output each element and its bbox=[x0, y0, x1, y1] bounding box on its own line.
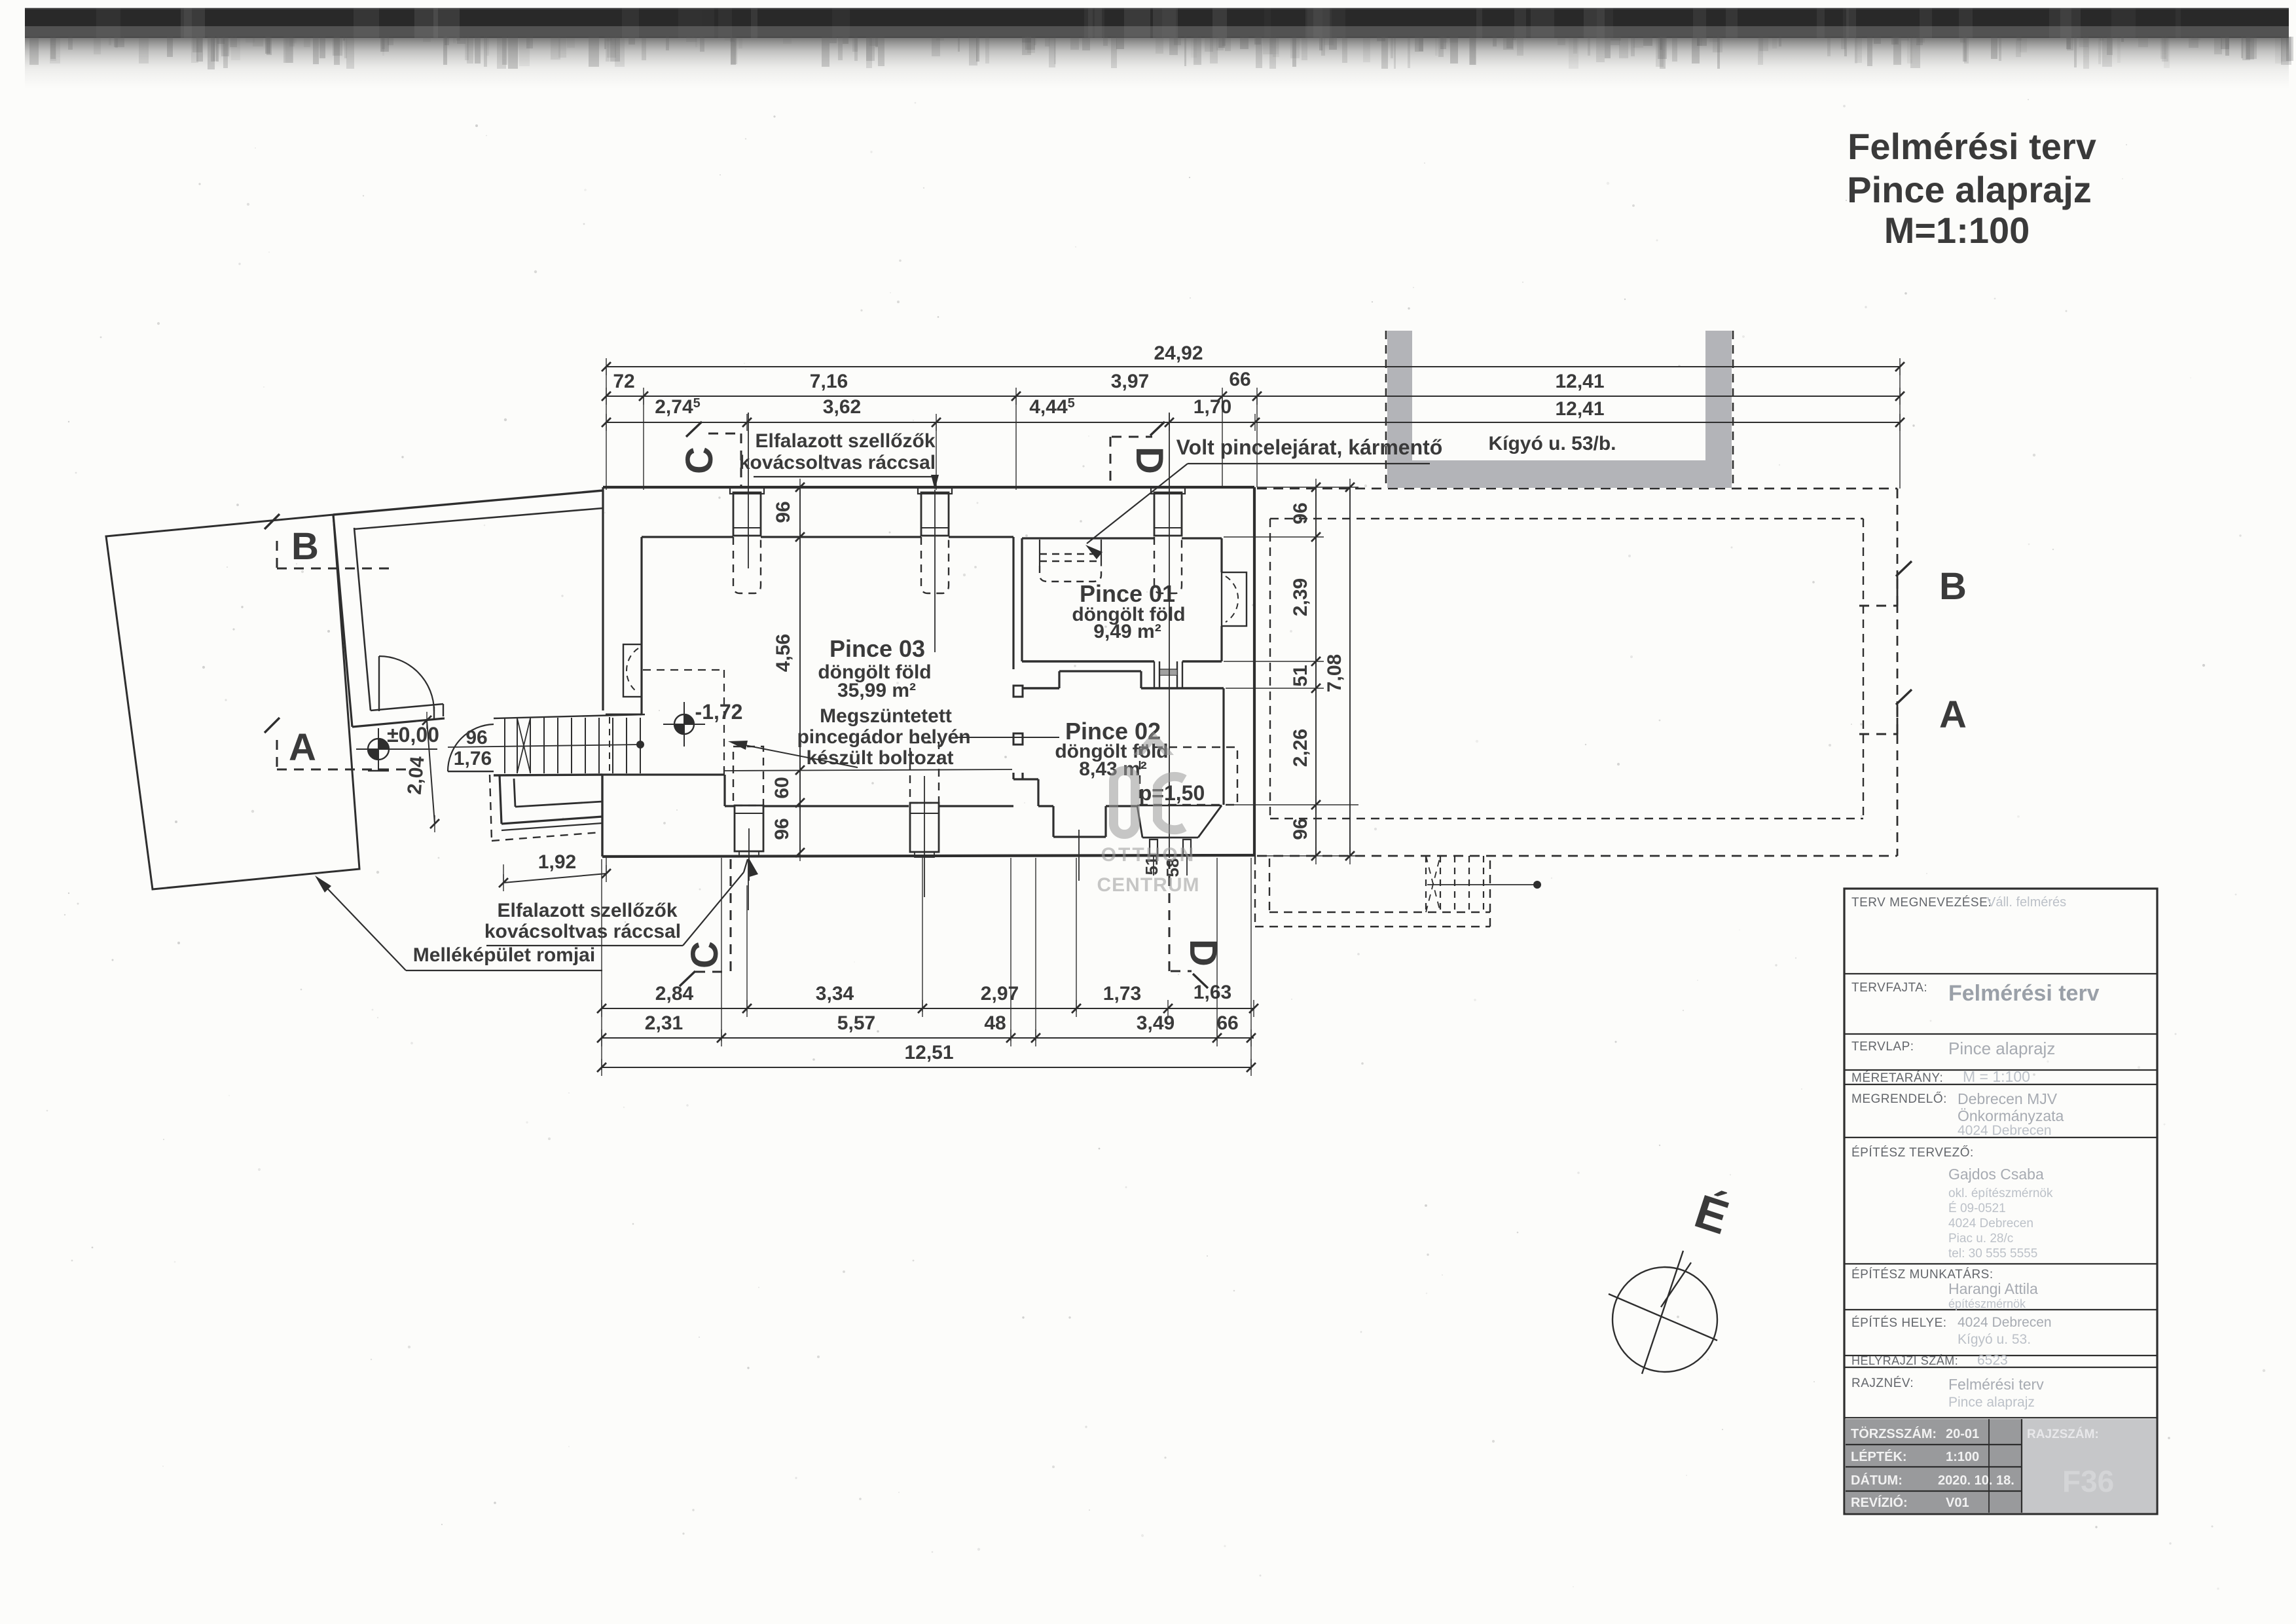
svg-text:Melléképület romjai: Melléképület romjai bbox=[413, 944, 595, 966]
svg-text:É 09-0521: É 09-0521 bbox=[1948, 1202, 2006, 1215]
svg-text:1:100: 1:100 bbox=[1946, 1450, 1979, 1464]
svg-text:Debrecen MJV: Debrecen MJV bbox=[1958, 1090, 2058, 1107]
svg-text:Felmérési terv: Felmérési terv bbox=[1948, 1376, 2044, 1393]
svg-text:C: C bbox=[683, 941, 726, 969]
svg-text:20-01: 20-01 bbox=[1946, 1427, 1979, 1441]
svg-text:7,16: 7,16 bbox=[810, 371, 848, 392]
svg-text:ÉPÍTÉS HELYE:: ÉPÍTÉS HELYE: bbox=[1851, 1316, 1947, 1330]
svg-text:96: 96 bbox=[773, 501, 794, 523]
svg-text:ÉPÍTÉSZ MUNKATÁRS:: ÉPÍTÉSZ MUNKATÁRS: bbox=[1851, 1268, 1994, 1282]
svg-text:3,49: 3,49 bbox=[1137, 1012, 1175, 1034]
svg-text:D: D bbox=[1128, 447, 1171, 474]
svg-text:Pince alaprajz: Pince alaprajz bbox=[1847, 169, 2092, 210]
svg-text:12,41: 12,41 bbox=[1555, 371, 1604, 392]
svg-text:Pince 03: Pince 03 bbox=[829, 635, 925, 662]
svg-text:V01: V01 bbox=[1946, 1496, 1969, 1510]
svg-text:±0,00: ±0,00 bbox=[387, 723, 439, 747]
svg-text:Elfalazott szellőzők: Elfalazott szellőzők bbox=[497, 900, 677, 921]
svg-text:4024 Debrecen: 4024 Debrecen bbox=[1948, 1217, 2033, 1230]
svg-text:24,92: 24,92 bbox=[1154, 342, 1203, 364]
svg-text:RAJZNÉV:: RAJZNÉV: bbox=[1851, 1376, 1914, 1390]
svg-text:4,445: 4,445 bbox=[1029, 396, 1075, 418]
svg-text:66: 66 bbox=[1229, 369, 1250, 390]
svg-text:okl. építészmérnök: okl. építészmérnök bbox=[1948, 1187, 2053, 1200]
svg-text:ÉPÍTÉSZ TERVEZŐ:: ÉPÍTÉSZ TERVEZŐ: bbox=[1851, 1145, 1974, 1160]
svg-text:1,63: 1,63 bbox=[1194, 982, 1231, 1003]
svg-text:1,76: 1,76 bbox=[454, 748, 492, 769]
svg-text:LÉPTÉK:: LÉPTÉK: bbox=[1851, 1449, 1907, 1464]
svg-text:Felmérési terv: Felmérési terv bbox=[1948, 981, 2100, 1006]
svg-text:RAJZSZÁM:: RAJZSZÁM: bbox=[2027, 1427, 2099, 1441]
svg-text:kovácsoltvas ráccsal: kovácsoltvas ráccsal bbox=[484, 921, 681, 942]
svg-text:Váll. felmérés: Váll. felmérés bbox=[1987, 895, 2066, 910]
svg-text:Pince alaprajz: Pince alaprajz bbox=[1948, 1395, 2035, 1410]
svg-text:48: 48 bbox=[984, 1012, 1006, 1034]
svg-text:2,745: 2,745 bbox=[655, 396, 701, 418]
svg-text:Pince 01: Pince 01 bbox=[1080, 580, 1175, 607]
svg-text:2,04: 2,04 bbox=[404, 755, 429, 795]
svg-text:2,39: 2,39 bbox=[1290, 578, 1311, 616]
svg-text:6523: 6523 bbox=[1977, 1353, 2008, 1368]
svg-text:Megszüntetett: Megszüntetett bbox=[820, 705, 952, 727]
svg-text:-1,72: -1,72 bbox=[695, 700, 743, 724]
svg-text:A: A bbox=[1939, 693, 1967, 736]
svg-text:B: B bbox=[1939, 565, 1967, 608]
svg-text:Önkormányzata: Önkormányzata bbox=[1958, 1107, 2064, 1124]
svg-text:4,56: 4,56 bbox=[773, 634, 794, 672]
svg-text:D: D bbox=[1182, 939, 1224, 967]
svg-text:1,73: 1,73 bbox=[1103, 983, 1141, 1005]
svg-text:2020. 10. 18.: 2020. 10. 18. bbox=[1938, 1473, 2014, 1488]
svg-text:A: A bbox=[289, 726, 316, 769]
svg-text:HELYRAJZI SZÁM:: HELYRAJZI SZÁM: bbox=[1851, 1354, 1958, 1367]
svg-text:Volt pincelejárat, kármentő: Volt pincelejárat, kármentő bbox=[1176, 435, 1443, 459]
svg-text:CENTRUM: CENTRUM bbox=[1097, 874, 1200, 896]
svg-text:készült boltozat: készült boltozat bbox=[806, 747, 953, 769]
svg-text:M=1:100: M=1:100 bbox=[1884, 210, 2030, 251]
svg-text:12,51: 12,51 bbox=[904, 1042, 953, 1063]
svg-text:REVÍZIÓ:: REVÍZIÓ: bbox=[1851, 1494, 1908, 1510]
svg-text:1,70: 1,70 bbox=[1194, 396, 1231, 418]
svg-text:3,34: 3,34 bbox=[816, 983, 854, 1005]
svg-text:5,57: 5,57 bbox=[837, 1012, 875, 1034]
svg-text:pincegádor helyén: pincegádor helyén bbox=[797, 726, 970, 748]
svg-text:4024 Debrecen: 4024 Debrecen bbox=[1958, 1315, 2052, 1330]
svg-text:2,97: 2,97 bbox=[981, 983, 1019, 1005]
svg-text:C: C bbox=[678, 447, 721, 474]
svg-text:60: 60 bbox=[771, 777, 793, 798]
svg-text:Piac u. 28/c: Piac u. 28/c bbox=[1948, 1232, 2013, 1246]
svg-text:építészmérnök: építészmérnök bbox=[1948, 1297, 2026, 1310]
svg-text:F36: F36 bbox=[2062, 1464, 2114, 1498]
svg-text:1,92: 1,92 bbox=[538, 851, 576, 873]
svg-text:96: 96 bbox=[771, 818, 793, 840]
svg-text:Harangi Attila: Harangi Attila bbox=[1948, 1280, 2038, 1297]
svg-text:Gajdos Csaba: Gajdos Csaba bbox=[1948, 1166, 2044, 1183]
svg-text:TERVFAJTA:: TERVFAJTA: bbox=[1851, 981, 1927, 995]
svg-text:2,31: 2,31 bbox=[645, 1012, 683, 1034]
svg-text:96: 96 bbox=[1290, 502, 1311, 524]
svg-text:51: 51 bbox=[1290, 665, 1311, 686]
svg-text:7,08: 7,08 bbox=[1324, 654, 1345, 692]
svg-text:9,49 m²: 9,49 m² bbox=[1093, 621, 1161, 642]
svg-text:kovácsoltvas ráccsal: kovácsoltvas ráccsal bbox=[739, 452, 936, 473]
svg-text:TÖRZSSZÁM:: TÖRZSSZÁM: bbox=[1851, 1426, 1937, 1441]
svg-text:Kígyó u. 53.: Kígyó u. 53. bbox=[1958, 1332, 2031, 1347]
svg-text:12,41: 12,41 bbox=[1555, 398, 1604, 420]
svg-text:72: 72 bbox=[613, 371, 634, 392]
svg-text:B: B bbox=[291, 525, 319, 568]
svg-text:4024 Debrecen: 4024 Debrecen bbox=[1958, 1123, 2052, 1138]
svg-text:2,84: 2,84 bbox=[655, 983, 694, 1005]
svg-text:96: 96 bbox=[1290, 818, 1311, 840]
svg-text:OTTHON: OTTHON bbox=[1101, 844, 1196, 866]
svg-text:66: 66 bbox=[1216, 1012, 1238, 1034]
svg-text:3,97: 3,97 bbox=[1111, 371, 1149, 392]
svg-text:2,26: 2,26 bbox=[1290, 729, 1311, 767]
svg-text:MÉRETARÁNY:: MÉRETARÁNY: bbox=[1851, 1071, 1943, 1085]
svg-text:TERVLAP:: TERVLAP: bbox=[1851, 1040, 1914, 1054]
svg-text:MEGRENDELŐ:: MEGRENDELŐ: bbox=[1851, 1092, 1947, 1106]
svg-text:3,62: 3,62 bbox=[823, 396, 861, 418]
svg-text:Elfalazott szellőzők: Elfalazott szellőzők bbox=[755, 430, 935, 452]
svg-text:É: É bbox=[1688, 1185, 1734, 1245]
svg-text:35,99 m²: 35,99 m² bbox=[837, 680, 916, 701]
svg-text:96: 96 bbox=[465, 727, 487, 748]
svg-text:M = 1:100: M = 1:100 bbox=[1963, 1068, 2030, 1085]
svg-text:p=1,50: p=1,50 bbox=[1139, 781, 1205, 805]
svg-text:TERV MEGNEVEZÉSE:: TERV MEGNEVEZÉSE: bbox=[1851, 896, 1992, 910]
svg-text:DÁTUM:: DÁTUM: bbox=[1851, 1473, 1903, 1488]
svg-text:Kígyó u. 53/b.: Kígyó u. 53/b. bbox=[1488, 433, 1616, 454]
svg-text:Felmérési terv: Felmérési terv bbox=[1848, 126, 2096, 167]
svg-text:tel: 30 555 5555: tel: 30 555 5555 bbox=[1948, 1247, 2037, 1261]
svg-text:Pince alaprajz: Pince alaprajz bbox=[1948, 1039, 2055, 1058]
